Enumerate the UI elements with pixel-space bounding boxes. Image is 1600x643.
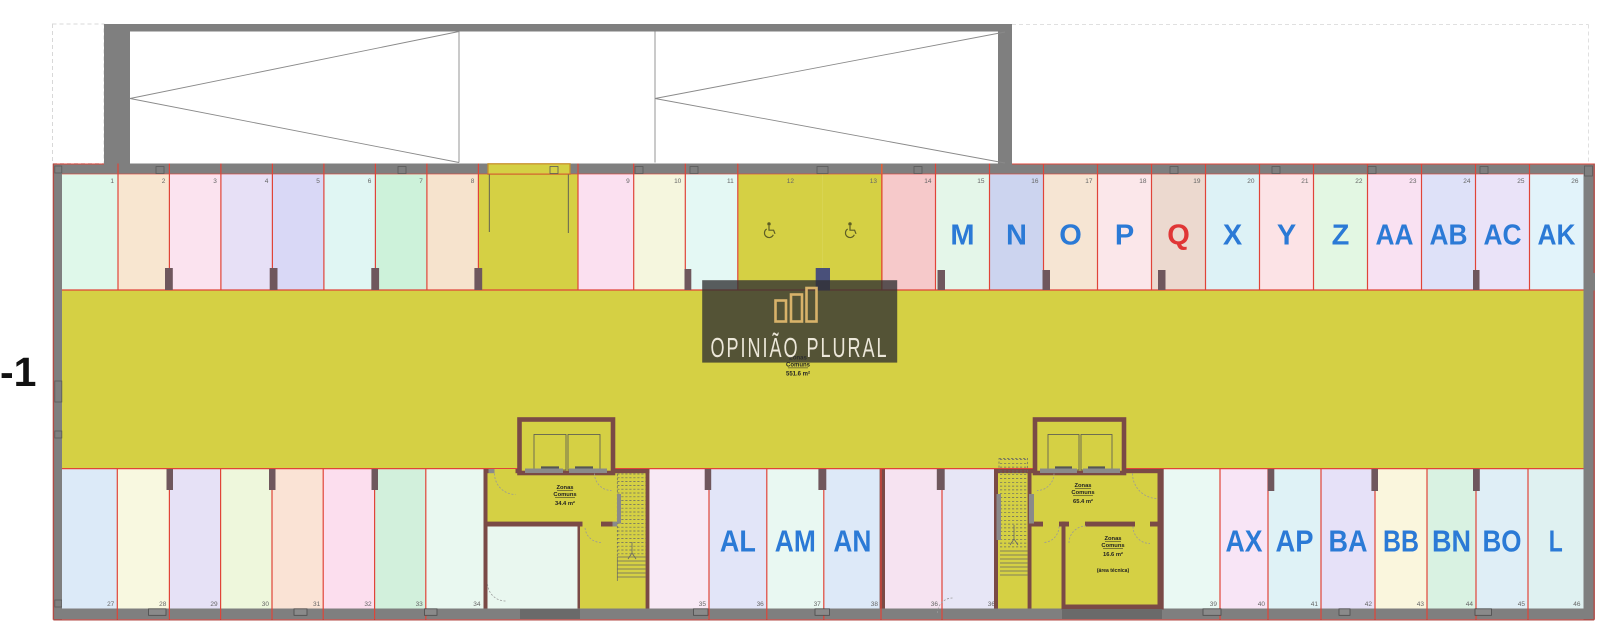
svg-text:BA: BA [1329, 524, 1368, 559]
svg-text:40: 40 [1258, 601, 1266, 608]
svg-text:29: 29 [210, 601, 218, 608]
svg-text:P: P [1115, 220, 1134, 252]
svg-text:Y: Y [1277, 220, 1296, 252]
svg-text:18: 18 [1139, 178, 1147, 185]
svg-text:27: 27 [107, 601, 115, 608]
svg-text:24: 24 [1463, 178, 1471, 185]
svg-text:11: 11 [727, 178, 734, 185]
svg-text:8: 8 [471, 178, 475, 185]
svg-text:Zonas: Zonas [1074, 483, 1091, 489]
svg-text:19: 19 [1193, 178, 1201, 185]
svg-text:Comuns: Comuns [786, 363, 811, 369]
svg-text:AM: AM [775, 524, 816, 559]
svg-text:30: 30 [262, 601, 270, 608]
svg-text:L: L [1549, 524, 1563, 559]
svg-text:X: X [1223, 220, 1243, 252]
svg-text:(área técnica): (área técnica) [1097, 568, 1130, 574]
svg-text:43: 43 [1417, 601, 1425, 608]
svg-text:37: 37 [814, 601, 822, 608]
svg-text:AC: AC [1484, 220, 1522, 252]
svg-text:OPINIÃO PLURAL: OPINIÃO PLURAL [711, 332, 889, 363]
svg-text:38: 38 [871, 601, 879, 608]
svg-text:25: 25 [1517, 178, 1525, 185]
svg-text:12: 12 [787, 178, 795, 185]
svg-text:Zonas: Zonas [556, 485, 573, 491]
svg-text:Comuns: Comuns [1101, 543, 1124, 549]
svg-text:34: 34 [473, 601, 481, 608]
svg-text:9: 9 [626, 178, 630, 185]
svg-text:BN: BN [1432, 524, 1471, 559]
svg-text:6: 6 [368, 178, 372, 185]
svg-text:Z: Z [1332, 220, 1350, 252]
svg-text:N: N [1006, 220, 1027, 252]
svg-text:36: 36 [757, 601, 765, 608]
svg-text:AP: AP [1276, 524, 1314, 559]
svg-text:20: 20 [1247, 178, 1255, 185]
svg-text:26: 26 [1571, 178, 1579, 185]
svg-text:44: 44 [1466, 601, 1474, 608]
svg-text:13: 13 [870, 178, 878, 185]
svg-text:35: 35 [699, 601, 707, 608]
svg-text:Comuns: Comuns [1071, 490, 1094, 496]
svg-text:BB: BB [1383, 524, 1419, 559]
svg-text:4: 4 [265, 178, 269, 185]
svg-text:551.6 m²: 551.6 m² [786, 371, 810, 378]
svg-text:BO: BO [1483, 524, 1522, 559]
svg-text:31: 31 [313, 601, 321, 608]
svg-text:AX: AX [1226, 524, 1263, 559]
svg-text:28: 28 [159, 601, 167, 608]
svg-text:2: 2 [162, 178, 166, 185]
svg-text:15: 15 [977, 178, 985, 185]
svg-text:23: 23 [1409, 178, 1417, 185]
svg-text:65.4 m²: 65.4 m² [1073, 498, 1093, 505]
svg-text:45: 45 [1518, 601, 1526, 608]
svg-text:14: 14 [924, 178, 932, 185]
svg-text:42: 42 [1365, 601, 1373, 608]
svg-text:16.6 m²: 16.6 m² [1103, 551, 1123, 558]
svg-text:36: 36 [931, 601, 939, 608]
svg-text:46: 46 [1573, 601, 1581, 608]
svg-text:3: 3 [213, 178, 217, 185]
svg-text:AK: AK [1538, 220, 1576, 252]
svg-text:AB: AB [1430, 220, 1468, 252]
svg-text:5: 5 [316, 178, 320, 185]
svg-text:AA: AA [1376, 220, 1414, 252]
svg-text:21: 21 [1301, 178, 1309, 185]
svg-text:AN: AN [833, 524, 871, 559]
svg-text:32: 32 [364, 601, 372, 608]
svg-text:16: 16 [1031, 178, 1039, 185]
svg-text:1: 1 [110, 178, 114, 185]
svg-text:Q: Q [1167, 220, 1190, 252]
svg-text:41: 41 [1311, 601, 1319, 608]
svg-text:O: O [1059, 220, 1082, 252]
svg-text:Zonas: Zonas [1104, 536, 1121, 542]
svg-text:7: 7 [419, 178, 423, 185]
svg-text:34.4 m²: 34.4 m² [555, 500, 575, 507]
svg-text:AL: AL [720, 524, 756, 559]
svg-text:39: 39 [1210, 601, 1218, 608]
svg-text:22: 22 [1355, 178, 1363, 185]
svg-text:33: 33 [416, 601, 424, 608]
svg-text:Comuns: Comuns [553, 492, 576, 498]
svg-text:M: M [950, 220, 974, 252]
svg-text:-1: -1 [0, 349, 36, 395]
svg-text:10: 10 [674, 178, 682, 185]
svg-text:17: 17 [1085, 178, 1093, 185]
